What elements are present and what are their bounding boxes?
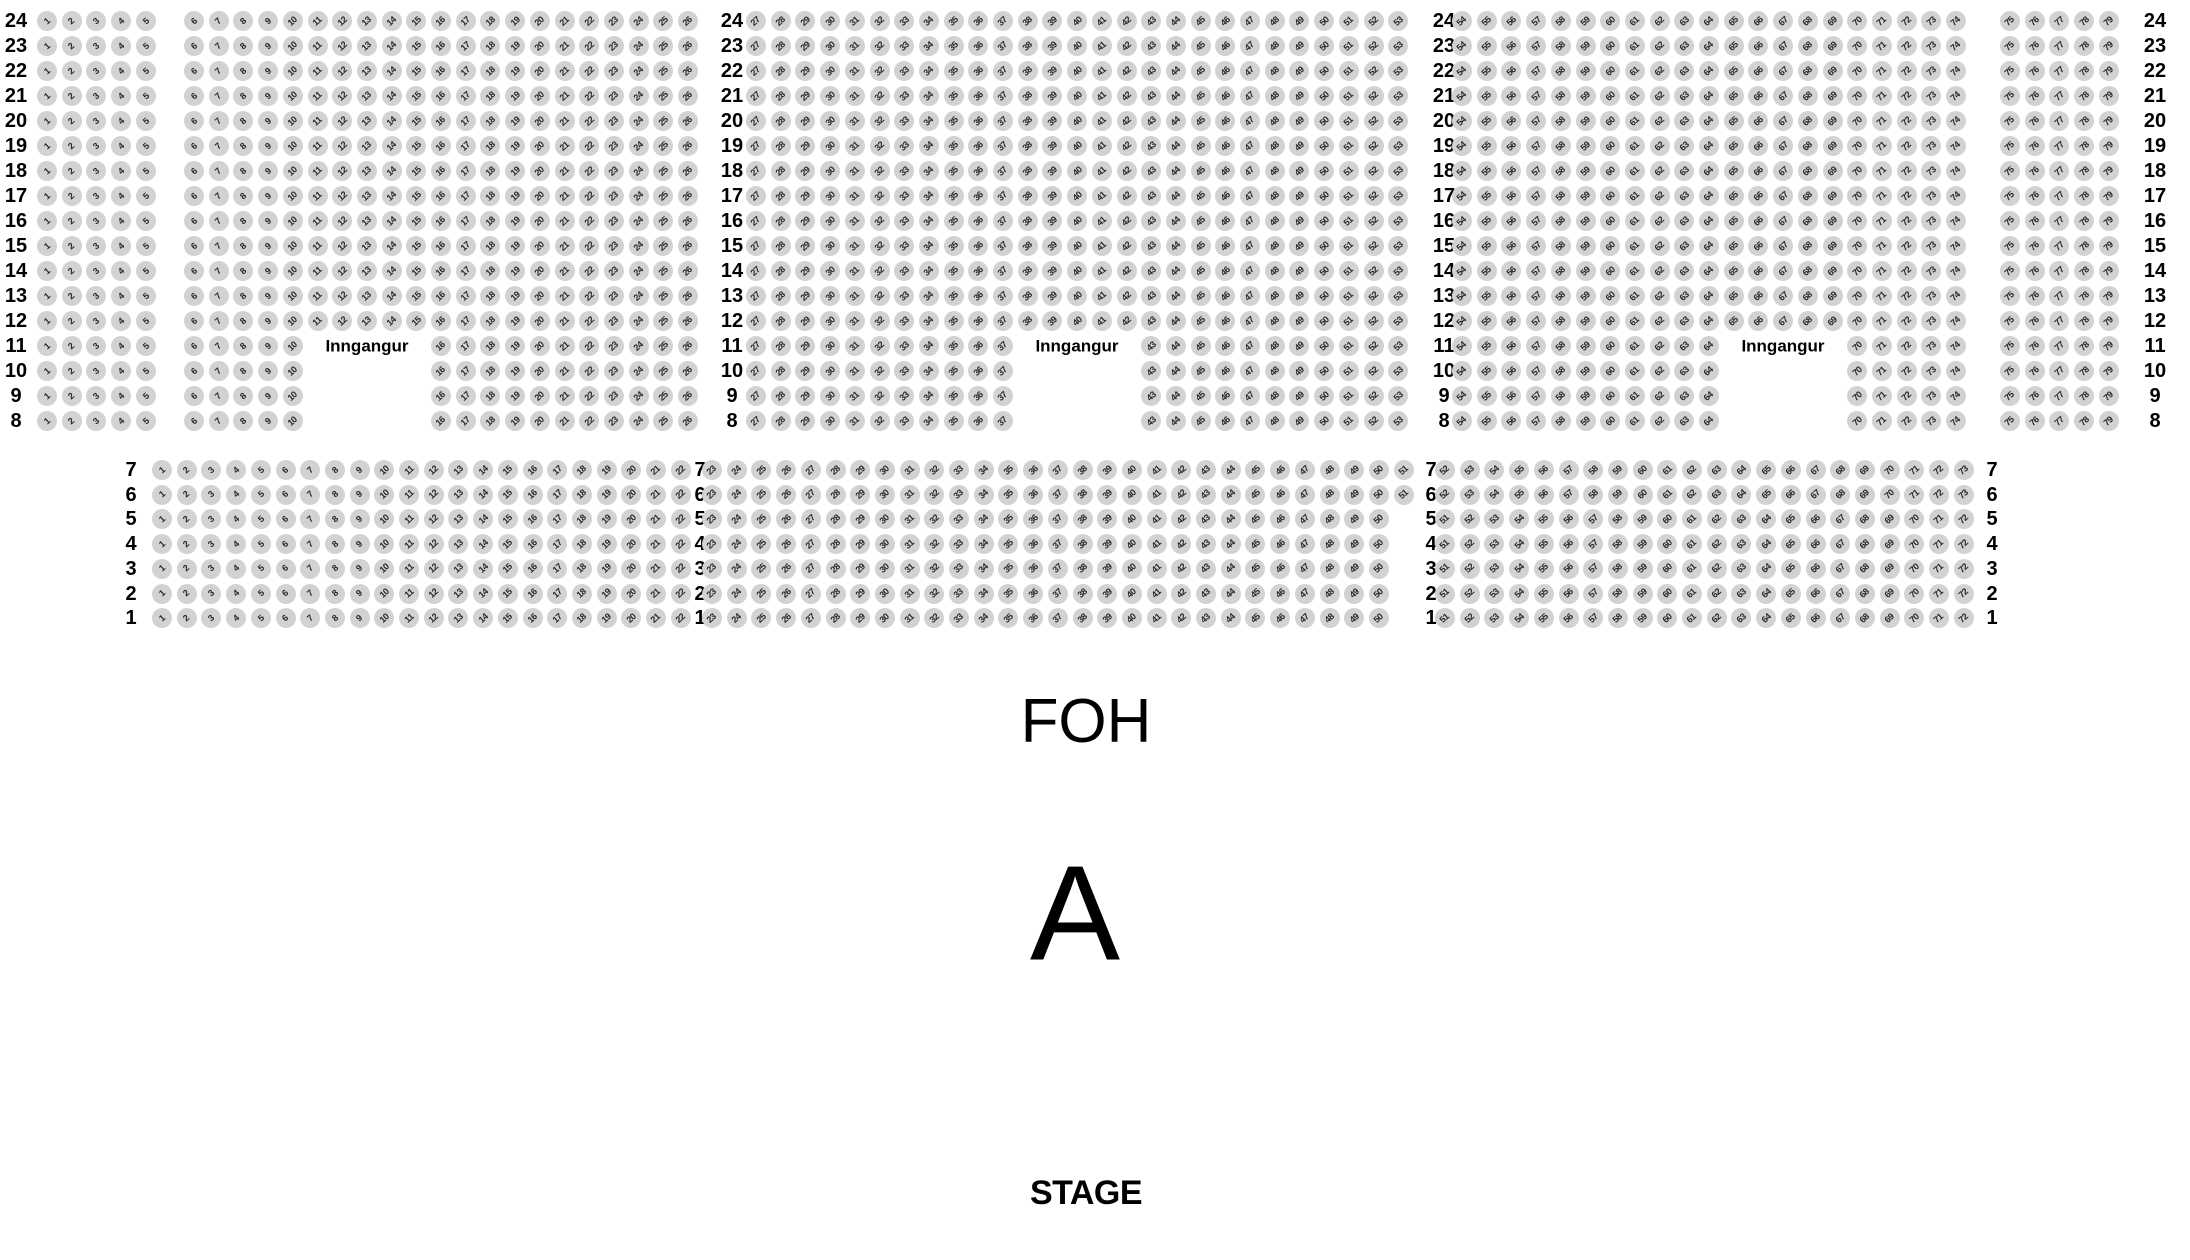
- seat[interactable]: 34: [919, 386, 939, 406]
- seat[interactable]: 65: [1724, 11, 1744, 31]
- seat[interactable]: 4: [111, 386, 131, 406]
- seat[interactable]: 43: [1141, 61, 1161, 81]
- seat[interactable]: 53: [1388, 336, 1408, 356]
- seat[interactable]: 24: [629, 136, 649, 156]
- seat[interactable]: 79: [2099, 311, 2119, 331]
- seat[interactable]: 35: [944, 61, 964, 81]
- seat[interactable]: 23: [604, 36, 624, 56]
- seat[interactable]: 36: [968, 136, 988, 156]
- seat[interactable]: 72: [1929, 485, 1949, 505]
- seat[interactable]: 66: [1748, 311, 1768, 331]
- seat[interactable]: 24: [629, 411, 649, 431]
- seat[interactable]: 51: [1339, 161, 1359, 181]
- seat[interactable]: 20: [530, 161, 550, 181]
- seat[interactable]: 77: [2049, 361, 2069, 381]
- seat[interactable]: 30: [820, 161, 840, 181]
- seat[interactable]: 2: [62, 111, 82, 131]
- seat[interactable]: 40: [1122, 559, 1142, 579]
- seat[interactable]: 70: [1847, 86, 1867, 106]
- seat[interactable]: 64: [1699, 161, 1719, 181]
- seat[interactable]: 71: [1872, 161, 1892, 181]
- seat[interactable]: 21: [555, 411, 575, 431]
- seat[interactable]: 12: [332, 161, 352, 181]
- seat[interactable]: 10: [283, 261, 303, 281]
- seat[interactable]: 3: [201, 485, 221, 505]
- seat[interactable]: 16: [431, 11, 451, 31]
- seat[interactable]: 53: [1388, 261, 1408, 281]
- seat[interactable]: 29: [795, 311, 815, 331]
- seat[interactable]: 6: [184, 286, 204, 306]
- seat[interactable]: 44: [1166, 136, 1186, 156]
- seat[interactable]: 26: [678, 211, 698, 231]
- seat[interactable]: 73: [1921, 386, 1941, 406]
- seat[interactable]: 25: [751, 485, 771, 505]
- seat[interactable]: 70: [1904, 534, 1924, 554]
- seat[interactable]: 17: [547, 608, 567, 628]
- seat[interactable]: 10: [283, 61, 303, 81]
- seat[interactable]: 15: [406, 61, 426, 81]
- seat[interactable]: 45: [1245, 534, 1265, 554]
- seat[interactable]: 64: [1731, 485, 1751, 505]
- seat[interactable]: 21: [555, 386, 575, 406]
- seat[interactable]: 29: [795, 161, 815, 181]
- seat[interactable]: 28: [771, 11, 791, 31]
- seat[interactable]: 40: [1067, 11, 1087, 31]
- seat[interactable]: 20: [530, 36, 550, 56]
- seat[interactable]: 3: [201, 534, 221, 554]
- seat[interactable]: 38: [1018, 186, 1038, 206]
- seat[interactable]: 71: [1872, 111, 1892, 131]
- seat[interactable]: 26: [678, 361, 698, 381]
- seat[interactable]: 43: [1196, 460, 1216, 480]
- seat[interactable]: 52: [1460, 509, 1480, 529]
- seat[interactable]: 17: [456, 361, 476, 381]
- seat[interactable]: 34: [919, 111, 939, 131]
- seat[interactable]: 7: [209, 236, 229, 256]
- seat[interactable]: 60: [1600, 236, 1620, 256]
- seat[interactable]: 68: [1798, 236, 1818, 256]
- seat[interactable]: 27: [801, 559, 821, 579]
- seat[interactable]: 8: [233, 211, 253, 231]
- seat[interactable]: 27: [746, 236, 766, 256]
- seat[interactable]: 41: [1147, 509, 1167, 529]
- seat[interactable]: 24: [629, 336, 649, 356]
- seat[interactable]: 30: [820, 111, 840, 131]
- seat[interactable]: 1: [37, 336, 57, 356]
- seat[interactable]: 20: [530, 311, 550, 331]
- seat[interactable]: 57: [1526, 336, 1546, 356]
- seat[interactable]: 65: [1724, 161, 1744, 181]
- seat[interactable]: 2: [62, 211, 82, 231]
- seat[interactable]: 4: [226, 534, 246, 554]
- seat[interactable]: 38: [1018, 86, 1038, 106]
- seat[interactable]: 15: [406, 161, 426, 181]
- seat[interactable]: 27: [746, 111, 766, 131]
- seat[interactable]: 16: [431, 111, 451, 131]
- seat[interactable]: 45: [1191, 186, 1211, 206]
- seat[interactable]: 6: [184, 386, 204, 406]
- seat[interactable]: 48: [1265, 11, 1285, 31]
- seat[interactable]: 1: [37, 161, 57, 181]
- seat[interactable]: 54: [1452, 86, 1472, 106]
- seat[interactable]: 56: [1501, 111, 1521, 131]
- seat[interactable]: 52: [1364, 236, 1384, 256]
- seat[interactable]: 36: [968, 311, 988, 331]
- seat[interactable]: 7: [209, 411, 229, 431]
- seat[interactable]: 14: [382, 136, 402, 156]
- seat[interactable]: 33: [894, 336, 914, 356]
- seat[interactable]: 48: [1265, 136, 1285, 156]
- seat[interactable]: 67: [1773, 186, 1793, 206]
- seat[interactable]: 40: [1067, 86, 1087, 106]
- seat[interactable]: 75: [2000, 186, 2020, 206]
- seat[interactable]: 76: [2025, 311, 2045, 331]
- seat[interactable]: 45: [1191, 36, 1211, 56]
- seat[interactable]: 38: [1018, 311, 1038, 331]
- seat[interactable]: 26: [678, 311, 698, 331]
- seat[interactable]: 41: [1147, 584, 1167, 604]
- seat[interactable]: 5: [136, 36, 156, 56]
- seat[interactable]: 76: [2025, 136, 2045, 156]
- seat[interactable]: 32: [870, 161, 890, 181]
- seat[interactable]: 26: [678, 236, 698, 256]
- seat[interactable]: 70: [1880, 485, 1900, 505]
- seat[interactable]: 78: [2074, 136, 2094, 156]
- seat[interactable]: 56: [1501, 386, 1521, 406]
- seat[interactable]: 27: [746, 411, 766, 431]
- seat[interactable]: 28: [771, 261, 791, 281]
- seat[interactable]: 52: [1364, 386, 1384, 406]
- seat[interactable]: 70: [1847, 411, 1867, 431]
- seat[interactable]: 10: [283, 386, 303, 406]
- seat[interactable]: 74: [1946, 136, 1966, 156]
- seat[interactable]: 29: [795, 111, 815, 131]
- seat[interactable]: 30: [820, 411, 840, 431]
- seat[interactable]: 71: [1872, 336, 1892, 356]
- seat[interactable]: 4: [111, 411, 131, 431]
- seat[interactable]: 49: [1289, 136, 1309, 156]
- seat[interactable]: 37: [993, 136, 1013, 156]
- seat[interactable]: 64: [1699, 11, 1719, 31]
- seat[interactable]: 57: [1526, 86, 1546, 106]
- seat[interactable]: 8: [233, 111, 253, 131]
- seat[interactable]: 22: [579, 61, 599, 81]
- seat[interactable]: 21: [555, 111, 575, 131]
- seat[interactable]: 59: [1576, 386, 1596, 406]
- seat[interactable]: 63: [1674, 61, 1694, 81]
- seat[interactable]: 38: [1073, 608, 1093, 628]
- seat[interactable]: 54: [1452, 361, 1472, 381]
- seat[interactable]: 35: [998, 485, 1018, 505]
- seat[interactable]: 67: [1773, 261, 1793, 281]
- seat[interactable]: 5: [136, 411, 156, 431]
- seat[interactable]: 56: [1501, 411, 1521, 431]
- seat[interactable]: 55: [1477, 361, 1497, 381]
- seat[interactable]: 58: [1551, 386, 1571, 406]
- seat[interactable]: 64: [1699, 186, 1719, 206]
- seat[interactable]: 70: [1904, 509, 1924, 529]
- seat[interactable]: 19: [505, 386, 525, 406]
- seat[interactable]: 13: [357, 161, 377, 181]
- seat[interactable]: 28: [771, 186, 791, 206]
- seat[interactable]: 5: [136, 336, 156, 356]
- seat[interactable]: 47: [1240, 86, 1260, 106]
- seat[interactable]: 41: [1092, 186, 1112, 206]
- seat[interactable]: 59: [1576, 111, 1596, 131]
- seat[interactable]: 53: [1388, 11, 1408, 31]
- seat[interactable]: 2: [177, 559, 197, 579]
- seat[interactable]: 56: [1534, 460, 1554, 480]
- seat[interactable]: 32: [870, 111, 890, 131]
- seat[interactable]: 2: [177, 509, 197, 529]
- seat[interactable]: 32: [924, 485, 944, 505]
- seat[interactable]: 3: [86, 186, 106, 206]
- seat[interactable]: 21: [555, 161, 575, 181]
- seat[interactable]: 25: [751, 460, 771, 480]
- seat[interactable]: 75: [2000, 86, 2020, 106]
- seat[interactable]: 75: [2000, 161, 2020, 181]
- seat[interactable]: 48: [1265, 361, 1285, 381]
- seat[interactable]: 13: [357, 11, 377, 31]
- seat[interactable]: 16: [431, 386, 451, 406]
- seat[interactable]: 31: [900, 608, 920, 628]
- seat[interactable]: 49: [1289, 286, 1309, 306]
- seat[interactable]: 37: [1048, 559, 1068, 579]
- seat[interactable]: 76: [2025, 336, 2045, 356]
- seat[interactable]: 46: [1270, 559, 1290, 579]
- seat[interactable]: 29: [795, 261, 815, 281]
- seat[interactable]: 23: [604, 411, 624, 431]
- seat[interactable]: 38: [1073, 509, 1093, 529]
- seat[interactable]: 26: [678, 61, 698, 81]
- seat[interactable]: 20: [621, 534, 641, 554]
- seat[interactable]: 19: [597, 559, 617, 579]
- seat[interactable]: 65: [1724, 261, 1744, 281]
- seat[interactable]: 56: [1501, 61, 1521, 81]
- seat[interactable]: 79: [2099, 86, 2119, 106]
- seat[interactable]: 25: [653, 161, 673, 181]
- seat[interactable]: 54: [1484, 485, 1504, 505]
- seat[interactable]: 27: [746, 211, 766, 231]
- seat[interactable]: 30: [820, 386, 840, 406]
- seat[interactable]: 28: [771, 86, 791, 106]
- seat[interactable]: 33: [894, 86, 914, 106]
- seat[interactable]: 13: [357, 211, 377, 231]
- seat[interactable]: 41: [1092, 136, 1112, 156]
- seat[interactable]: 72: [1954, 534, 1974, 554]
- seat[interactable]: 13: [357, 236, 377, 256]
- seat[interactable]: 67: [1830, 559, 1850, 579]
- seat[interactable]: 4: [111, 36, 131, 56]
- seat[interactable]: 62: [1650, 311, 1670, 331]
- seat[interactable]: 59: [1633, 584, 1653, 604]
- seat[interactable]: 2: [62, 236, 82, 256]
- seat[interactable]: 25: [653, 336, 673, 356]
- seat[interactable]: 9: [258, 361, 278, 381]
- seat[interactable]: 49: [1344, 485, 1364, 505]
- seat[interactable]: 26: [678, 136, 698, 156]
- seat[interactable]: 25: [653, 311, 673, 331]
- seat[interactable]: 53: [1388, 411, 1408, 431]
- seat[interactable]: 68: [1798, 136, 1818, 156]
- seat[interactable]: 31: [900, 584, 920, 604]
- seat[interactable]: 4: [111, 261, 131, 281]
- seat[interactable]: 74: [1946, 286, 1966, 306]
- seat[interactable]: 69: [1855, 485, 1875, 505]
- seat[interactable]: 55: [1477, 86, 1497, 106]
- seat[interactable]: 64: [1699, 86, 1719, 106]
- seat[interactable]: 25: [751, 534, 771, 554]
- seat[interactable]: 14: [382, 286, 402, 306]
- seat[interactable]: 57: [1526, 61, 1546, 81]
- seat[interactable]: 72: [1897, 236, 1917, 256]
- seat[interactable]: 12: [424, 460, 444, 480]
- seat[interactable]: 45: [1245, 559, 1265, 579]
- seat[interactable]: 12: [332, 236, 352, 256]
- seat[interactable]: 24: [629, 211, 649, 231]
- seat[interactable]: 49: [1289, 311, 1309, 331]
- seat[interactable]: 38: [1018, 211, 1038, 231]
- seat[interactable]: 68: [1798, 186, 1818, 206]
- seat[interactable]: 53: [1388, 311, 1408, 331]
- seat[interactable]: 5: [136, 111, 156, 131]
- seat[interactable]: 42: [1117, 61, 1137, 81]
- seat[interactable]: 18: [572, 559, 592, 579]
- seat[interactable]: 42: [1117, 136, 1137, 156]
- seat[interactable]: 22: [579, 236, 599, 256]
- seat[interactable]: 9: [258, 386, 278, 406]
- seat[interactable]: 62: [1650, 136, 1670, 156]
- seat[interactable]: 5: [251, 509, 271, 529]
- seat[interactable]: 15: [406, 186, 426, 206]
- seat[interactable]: 78: [2074, 36, 2094, 56]
- seat[interactable]: 59: [1633, 534, 1653, 554]
- seat[interactable]: 49: [1289, 61, 1309, 81]
- seat[interactable]: 30: [875, 509, 895, 529]
- seat[interactable]: 73: [1921, 36, 1941, 56]
- seat[interactable]: 2: [62, 286, 82, 306]
- seat[interactable]: 19: [505, 286, 525, 306]
- seat[interactable]: 76: [2025, 61, 2045, 81]
- seat[interactable]: 71: [1929, 559, 1949, 579]
- seat[interactable]: 45: [1191, 161, 1211, 181]
- seat[interactable]: 71: [1872, 36, 1892, 56]
- seat[interactable]: 35: [944, 161, 964, 181]
- seat[interactable]: 55: [1477, 186, 1497, 206]
- seat[interactable]: 40: [1067, 36, 1087, 56]
- seat[interactable]: 76: [2025, 386, 2045, 406]
- seat[interactable]: 26: [678, 411, 698, 431]
- seat[interactable]: 16: [431, 336, 451, 356]
- seat[interactable]: 63: [1674, 111, 1694, 131]
- seat[interactable]: 6: [184, 61, 204, 81]
- seat[interactable]: 66: [1806, 534, 1826, 554]
- seat[interactable]: 73: [1954, 485, 1974, 505]
- seat[interactable]: 31: [845, 386, 865, 406]
- seat[interactable]: 56: [1501, 36, 1521, 56]
- seat[interactable]: 18: [480, 261, 500, 281]
- seat[interactable]: 17: [456, 236, 476, 256]
- seat[interactable]: 35: [944, 411, 964, 431]
- seat[interactable]: 42: [1171, 460, 1191, 480]
- seat[interactable]: 38: [1018, 286, 1038, 306]
- seat[interactable]: 38: [1073, 559, 1093, 579]
- seat[interactable]: 39: [1042, 236, 1062, 256]
- seat[interactable]: 48: [1320, 608, 1340, 628]
- seat[interactable]: 50: [1314, 336, 1334, 356]
- seat[interactable]: 9: [258, 261, 278, 281]
- seat[interactable]: 7: [300, 485, 320, 505]
- seat[interactable]: 70: [1847, 386, 1867, 406]
- seat[interactable]: 62: [1650, 236, 1670, 256]
- seat[interactable]: 51: [1435, 534, 1455, 554]
- seat[interactable]: 27: [801, 534, 821, 554]
- seat[interactable]: 60: [1600, 161, 1620, 181]
- seat[interactable]: 28: [826, 485, 846, 505]
- seat[interactable]: 1: [37, 236, 57, 256]
- seat[interactable]: 25: [751, 584, 771, 604]
- seat[interactable]: 58: [1551, 411, 1571, 431]
- seat[interactable]: 10: [283, 211, 303, 231]
- seat[interactable]: 55: [1534, 509, 1554, 529]
- seat[interactable]: 35: [944, 211, 964, 231]
- seat[interactable]: 36: [968, 211, 988, 231]
- seat[interactable]: 30: [820, 361, 840, 381]
- seat[interactable]: 39: [1097, 608, 1117, 628]
- seat[interactable]: 55: [1477, 11, 1497, 31]
- seat[interactable]: 15: [406, 286, 426, 306]
- seat[interactable]: 26: [678, 286, 698, 306]
- seat[interactable]: 36: [1023, 584, 1043, 604]
- seat[interactable]: 34: [919, 211, 939, 231]
- seat[interactable]: 36: [968, 236, 988, 256]
- seat[interactable]: 22: [579, 286, 599, 306]
- seat[interactable]: 77: [2049, 411, 2069, 431]
- seat[interactable]: 46: [1270, 485, 1290, 505]
- seat[interactable]: 32: [870, 86, 890, 106]
- seat[interactable]: 3: [86, 86, 106, 106]
- seat[interactable]: 3: [86, 411, 106, 431]
- seat[interactable]: 35: [944, 311, 964, 331]
- seat[interactable]: 64: [1756, 584, 1776, 604]
- seat[interactable]: 45: [1245, 460, 1265, 480]
- seat[interactable]: 69: [1823, 186, 1843, 206]
- seat[interactable]: 17: [456, 336, 476, 356]
- seat[interactable]: 32: [870, 186, 890, 206]
- seat[interactable]: 21: [646, 485, 666, 505]
- seat[interactable]: 72: [1897, 336, 1917, 356]
- seat[interactable]: 30: [820, 286, 840, 306]
- seat[interactable]: 3: [201, 460, 221, 480]
- seat[interactable]: 48: [1320, 460, 1340, 480]
- seat[interactable]: 76: [2025, 286, 2045, 306]
- seat[interactable]: 1: [37, 186, 57, 206]
- seat[interactable]: 6: [184, 186, 204, 206]
- seat[interactable]: 50: [1314, 311, 1334, 331]
- seat[interactable]: 30: [875, 460, 895, 480]
- seat[interactable]: 46: [1270, 608, 1290, 628]
- seat[interactable]: 4: [111, 61, 131, 81]
- seat[interactable]: 28: [826, 534, 846, 554]
- seat[interactable]: 59: [1633, 608, 1653, 628]
- seat[interactable]: 32: [870, 411, 890, 431]
- seat[interactable]: 23: [702, 559, 722, 579]
- seat[interactable]: 58: [1551, 86, 1571, 106]
- seat[interactable]: 51: [1339, 386, 1359, 406]
- seat[interactable]: 4: [111, 336, 131, 356]
- seat[interactable]: 7: [209, 311, 229, 331]
- seat[interactable]: 46: [1215, 36, 1235, 56]
